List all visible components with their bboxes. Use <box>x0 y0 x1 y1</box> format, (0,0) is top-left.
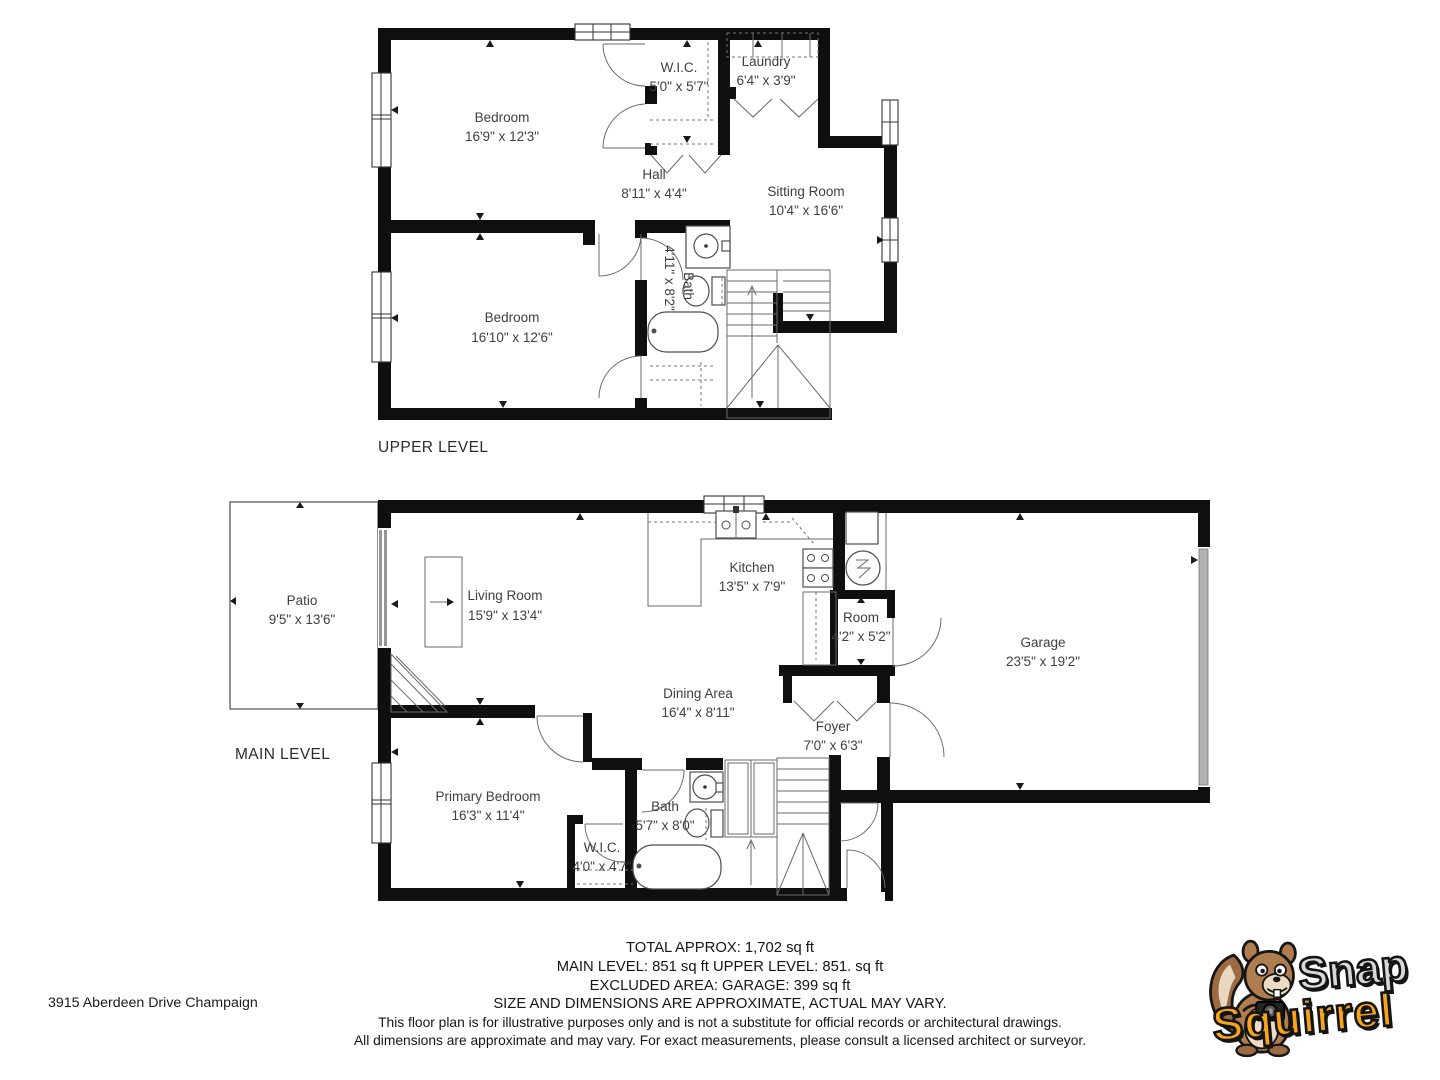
room-dims: 6'4" x 3'9" <box>736 73 795 88</box>
property-address: 3915 Aberdeen Drive Champaign <box>48 995 258 1011</box>
room-dims: 23'5" x 19'2" <box>1006 654 1080 669</box>
stairs-down-icon <box>747 758 829 895</box>
window <box>882 100 898 145</box>
sink-icon <box>686 226 730 268</box>
room-label: Bath <box>681 272 696 300</box>
room-label: Bath <box>651 799 679 814</box>
room-label: Kitchen <box>729 560 774 575</box>
door-arc <box>599 356 641 398</box>
stairs-up-icon <box>727 270 830 418</box>
window <box>882 218 898 262</box>
room-dims: 16'9" x 12'3" <box>465 129 539 144</box>
room-dims: 5'0" x 5'7" <box>649 79 708 94</box>
utility-fixtures <box>846 512 886 590</box>
room-dims: 5'7" x 8'0" <box>635 818 694 833</box>
room-label: W.I.C. <box>584 840 621 855</box>
upper-level-plan: Bedroom 16'9" x 12'3" W.I.C. 5'0" x 5'7"… <box>372 24 898 456</box>
room-label: Bedroom <box>485 310 540 325</box>
room-dims: 4'0" x 4'7" <box>572 859 631 874</box>
door-arc <box>840 803 878 841</box>
room-dims: 4'11" x 8'2" <box>662 245 677 311</box>
room-label: Dining Area <box>663 686 733 701</box>
room-label: Foyer <box>816 719 851 734</box>
floor-plan-drawing: Bedroom 16'9" x 12'3" W.I.C. 5'0" x 5'7"… <box>0 0 1440 1080</box>
room-label: Hall <box>642 167 665 182</box>
door-arc <box>537 716 583 762</box>
water-heater-icon <box>846 551 880 585</box>
room-dims: 9'5" x 13'6" <box>269 612 336 627</box>
snap-squirrel-logo: Snap Squirrel <box>1202 928 1440 1078</box>
room-dims: 16'4" x 8'11" <box>661 705 734 720</box>
room-dims: 10'4" x 16'6" <box>769 203 843 218</box>
main-level-plan: Patio 9'5" x 13'6" Living Room 15'9" x 1… <box>230 496 1210 901</box>
window <box>372 272 391 362</box>
door-arc <box>603 104 645 148</box>
door-arc <box>847 850 885 888</box>
room-label: Living Room <box>467 588 542 603</box>
upper-level-title: UPPER LEVEL <box>378 439 488 456</box>
bathtub-icon <box>648 312 718 352</box>
bathtub-icon <box>633 845 721 889</box>
room-label: Patio <box>287 593 318 608</box>
sink-icon <box>690 772 723 802</box>
room-label: Bedroom <box>475 110 530 125</box>
room-dims: 8'11" x 4'4" <box>621 186 687 201</box>
room-dims: 16'3" x 11'4" <box>451 808 524 823</box>
upper-walls <box>378 28 897 420</box>
sink-icon <box>716 506 756 538</box>
door-arc <box>890 703 944 757</box>
furnace-icon <box>846 512 878 544</box>
room-dims: 4'2" x 5'2" <box>831 629 890 644</box>
floor-plan-page: Bedroom 16'9" x 12'3" W.I.C. 5'0" x 5'7"… <box>0 0 1440 1080</box>
entry-double-door-icon <box>794 701 877 721</box>
sliding-door <box>378 528 462 648</box>
room-label: Garage <box>1020 635 1065 650</box>
window <box>372 73 391 167</box>
window <box>372 763 391 843</box>
stove-icon <box>803 549 833 587</box>
room-label: Sitting Room <box>767 184 844 199</box>
main-level-title: MAIN LEVEL <box>235 746 330 763</box>
room-dims: 15'9" x 13'4" <box>468 608 542 623</box>
room-label: Room <box>843 610 879 625</box>
room-dims: 16'10" x 12'6" <box>471 330 553 345</box>
room-dims: 7'0" x 6'3" <box>803 738 862 753</box>
bifold-door-icon <box>734 99 818 117</box>
fireplace-icon <box>391 654 447 712</box>
closet <box>725 760 777 837</box>
main-walls <box>378 500 1210 901</box>
door-arc <box>893 618 941 666</box>
garage-door <box>1198 547 1210 787</box>
door-arc <box>603 44 645 86</box>
door-arc <box>599 234 641 276</box>
window <box>575 24 630 40</box>
room-label: Primary Bedroom <box>435 789 540 804</box>
room-label: Laundry <box>742 54 791 69</box>
room-label: W.I.C. <box>661 60 698 75</box>
room-dims: 13'5" x 7'9" <box>719 579 786 594</box>
